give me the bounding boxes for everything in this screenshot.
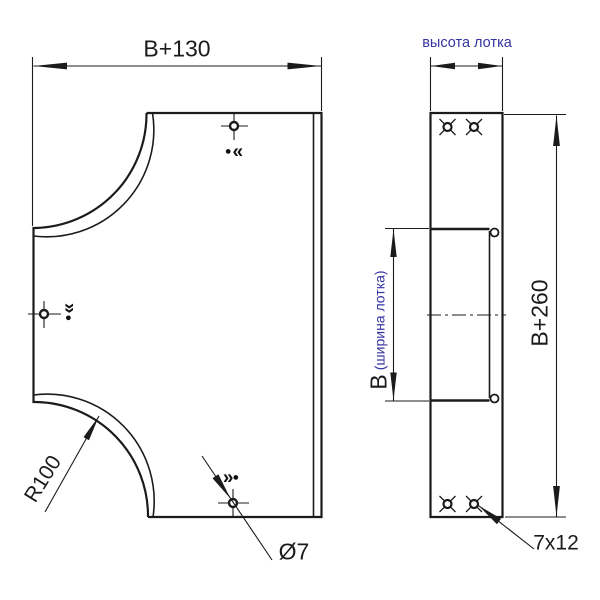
dim-label-tray-height: высота лотка xyxy=(422,36,512,51)
dim-label-b-width: B (ширина лотка) xyxy=(368,270,391,389)
dim-b130-lines xyxy=(33,57,322,226)
dim-label-b: B xyxy=(368,374,391,389)
dimension-arrowheads xyxy=(34,63,560,525)
dim-label-b130: B+130 xyxy=(143,38,210,61)
arrow-bwidth-top xyxy=(390,229,396,257)
marking-dot-icon: ● xyxy=(64,314,75,321)
slot-hole-bottom-right xyxy=(466,496,482,512)
marking-chevron-left-icon: « xyxy=(233,143,242,162)
slot-hole-top-right xyxy=(466,119,482,135)
marking-symbol-bottom: »● xyxy=(223,469,239,488)
side-outline xyxy=(431,113,503,517)
arrow-b130-left xyxy=(34,63,68,70)
hole-top xyxy=(221,114,248,140)
arrow-7x12 xyxy=(479,506,502,525)
side-rolled-edge-bottom xyxy=(491,395,499,403)
marking-symbol-left: ●« xyxy=(60,305,79,321)
dim-label-b260: B+260 xyxy=(529,279,552,346)
side-rolled-edge-top xyxy=(491,229,499,237)
arrow-height-left xyxy=(431,63,455,69)
plan-outline xyxy=(147,113,322,517)
marking-symbol-top: ●« xyxy=(225,143,241,162)
dim-label-b-note: (ширина лотка) xyxy=(372,270,386,370)
dim-label-dia7: Ø7 xyxy=(279,541,310,564)
plan-top-flange-inner-curve xyxy=(34,113,154,237)
side-view xyxy=(427,113,506,517)
marking-chevron-left-icon: « xyxy=(60,305,79,314)
marking-dot-icon: ● xyxy=(232,473,239,484)
marking-chevron-right-icon: » xyxy=(223,469,232,488)
dimension-lines xyxy=(33,57,567,560)
arrow-b260-bottom xyxy=(553,486,560,517)
technical-drawing-tray-tee-cover: B+130 высота лотка B+260 B (ширина лотка… xyxy=(0,0,600,600)
arrow-r100 xyxy=(84,416,100,440)
slot-hole-top-left xyxy=(440,119,456,135)
arrow-height-right xyxy=(478,63,502,69)
marking-dot-icon: ● xyxy=(225,147,232,158)
slot-hole-bottom-left xyxy=(440,496,456,512)
arrow-b260-top xyxy=(553,116,560,147)
drawing-linework xyxy=(0,0,600,600)
dim-label-7x12: 7x12 xyxy=(533,533,579,554)
arrow-b130-right xyxy=(288,63,322,70)
